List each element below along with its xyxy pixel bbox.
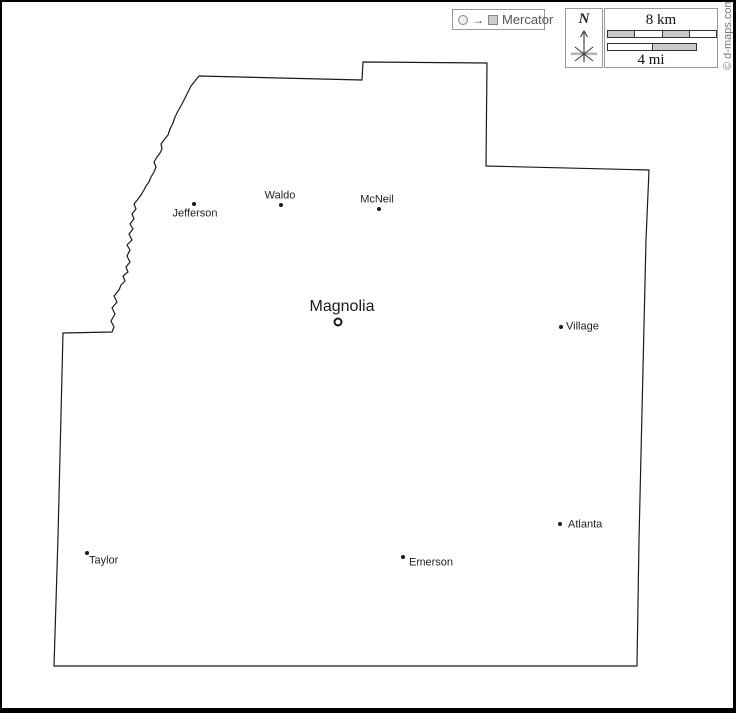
county-outline-map [0, 0, 736, 713]
county-border-path [54, 62, 649, 666]
frame-edge-top [0, 0, 736, 2]
compass-rose-icon [569, 28, 599, 66]
scale-bar-km [607, 30, 717, 38]
scale-mi-label: 4 mi [607, 53, 695, 68]
flat-map-square-icon [488, 15, 498, 25]
county-seat-marker [334, 318, 343, 327]
frame-edge-left [0, 0, 2, 713]
projection-legend: → Mercator [452, 9, 545, 30]
town-label-jefferson: Jefferson [172, 209, 217, 220]
north-label: N [579, 11, 590, 28]
projection-name: Mercator [502, 13, 553, 26]
globe-circle-icon [458, 15, 468, 25]
arrow-right-icon: → [472, 14, 484, 26]
scale-box: 8 km 4 mi [604, 8, 718, 68]
map-stage: Magnolia Jefferson Waldo McNeil Village … [0, 0, 736, 713]
town-label-taylor: Taylor [89, 556, 118, 567]
town-dot-mcneil [377, 207, 381, 211]
town-dot-waldo [279, 203, 283, 207]
town-dot-atlanta [558, 522, 562, 526]
mi-segment [652, 44, 697, 50]
mi-segment [608, 44, 652, 50]
town-label-emerson: Emerson [409, 558, 453, 569]
scale-bar-mi [607, 43, 697, 51]
town-label-waldo: Waldo [265, 191, 296, 202]
compass-box: N [565, 8, 603, 68]
county-seat-label: Magnolia [310, 299, 375, 315]
km-segment [689, 31, 716, 37]
town-label-village: Village [566, 322, 599, 333]
town-label-mcneil: McNeil [360, 195, 394, 206]
town-dot-jefferson [192, 202, 196, 206]
town-dot-emerson [401, 555, 405, 559]
frame-edge-bottom [0, 708, 736, 713]
km-segment [634, 31, 661, 37]
km-segment [662, 31, 689, 37]
town-label-atlanta: Atlanta [568, 520, 602, 531]
km-segment [608, 31, 634, 37]
town-dot-village [559, 325, 563, 329]
scale-km-label: 8 km [605, 13, 717, 28]
